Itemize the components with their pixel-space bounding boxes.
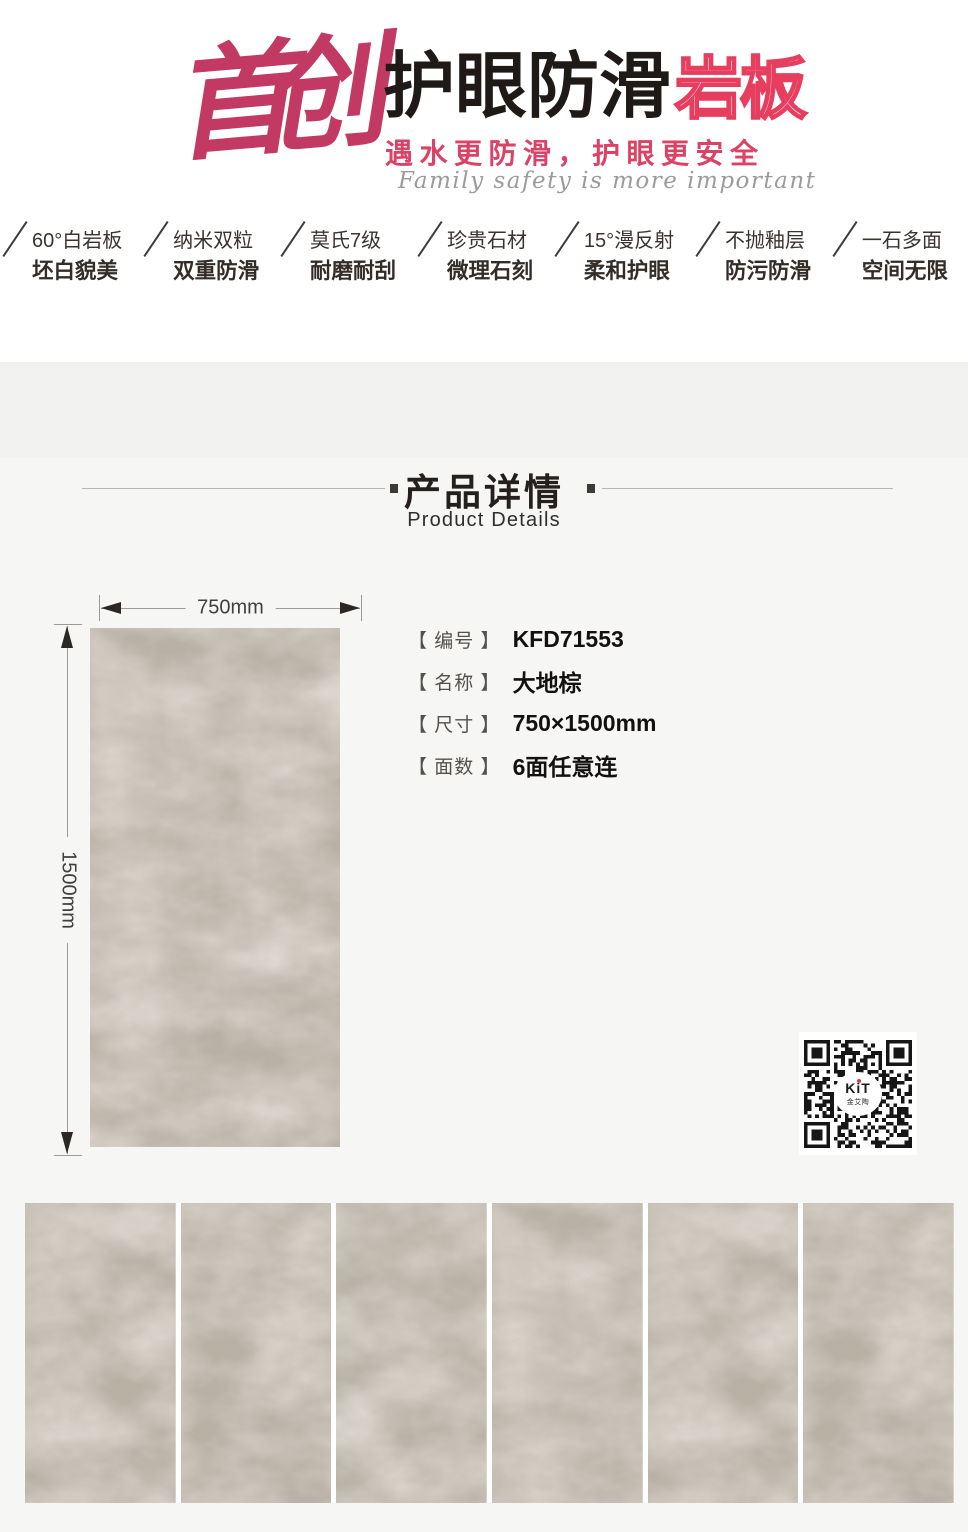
- title-square-right: [587, 484, 595, 493]
- spec-label: 【 面数 】: [408, 752, 501, 779]
- feature-line2: 坯白貌美: [32, 256, 122, 286]
- spec-row: 【 编号 】 KFD71553: [408, 618, 656, 660]
- feature-line2: 耐磨耐刮: [310, 256, 396, 286]
- dimension-tick: [361, 595, 362, 621]
- qr-logo-i: i: [856, 1081, 861, 1095]
- spec-label: 【 尺寸 】: [408, 710, 501, 737]
- arrow-left-icon: [101, 602, 121, 614]
- title-rule-right: [602, 488, 893, 489]
- feature-item: 一石多面 空间无限: [840, 226, 948, 286]
- feature-line1: 莫氏7级: [310, 226, 396, 256]
- feature-line1: 15°漫反射: [584, 226, 674, 256]
- spec-list: 【 编号 】 KFD71553 【 名称 】 大地棕 【 尺寸 】 750×15…: [408, 618, 656, 786]
- tagline-cn: 遇水更防滑，护眼更安全: [385, 132, 765, 172]
- slash-icon: [832, 221, 857, 257]
- feature-item: 莫氏7级 耐磨耐刮: [288, 226, 396, 286]
- feature-line1: 一石多面: [862, 226, 948, 256]
- spec-value: 750×1500mm: [513, 710, 657, 737]
- tile-gallery: [25, 1203, 954, 1503]
- feature-item: 60°白岩板 坯白貌美: [10, 226, 122, 286]
- headline-black: 护眼防滑: [383, 48, 671, 127]
- slash-icon: [144, 221, 169, 257]
- headline: 护眼防滑 岩板: [383, 48, 805, 127]
- feature-bar: 60°白岩板 坯白貌美 纳米双粒 双重防滑 莫氏7级 耐磨耐刮 珍贵石材 微理石…: [0, 226, 968, 286]
- width-label: 750mm: [185, 597, 276, 620]
- tile-swatch: [336, 1203, 487, 1503]
- slash-icon: [554, 221, 579, 257]
- qr-code: K i T 金艾陶: [799, 1032, 917, 1155]
- feature-item: 珍贵石材 微理石刻: [425, 226, 533, 286]
- spec-value: 6面任意连: [513, 748, 618, 782]
- feature-line2: 双重防滑: [173, 256, 259, 286]
- slash-icon: [280, 221, 305, 257]
- dimension-tick: [99, 595, 100, 621]
- qr-logo-t: T: [861, 1081, 871, 1095]
- product-detail-page: 首创 护眼防滑 岩板 遇水更防滑，护眼更安全 Family safety is …: [0, 0, 968, 1532]
- feature-line2: 防污防滑: [725, 256, 811, 286]
- spec-value: KFD71553: [513, 626, 624, 653]
- spec-row: 【 面数 】 6面任意连: [408, 744, 656, 786]
- feature-line2: 空间无限: [862, 256, 948, 286]
- arrow-right-icon: [340, 602, 360, 614]
- feature-line1: 纳米双粒: [173, 226, 259, 256]
- height-label: 1500mm: [57, 837, 80, 943]
- feature-line2: 微理石刻: [447, 256, 533, 286]
- tile-swatch: [25, 1203, 176, 1503]
- spec-label: 【 编号 】: [408, 626, 501, 653]
- feature-item: 15°漫反射 柔和护眼: [562, 226, 674, 286]
- brand-logo-calligraphy: 首创: [166, 18, 362, 180]
- spec-value: 大地棕: [513, 664, 582, 698]
- product-tile-image: [90, 628, 340, 1147]
- feature-item: 纳米双粒 双重防滑: [151, 226, 259, 286]
- dimension-tick: [54, 624, 82, 625]
- section-title: 产品详情: [0, 462, 968, 516]
- dimension-tick: [54, 1155, 82, 1156]
- qr-logo: K i T 金艾陶: [834, 1072, 882, 1116]
- tile-swatch: [648, 1203, 799, 1503]
- qr-logo-k: K: [845, 1081, 856, 1095]
- tile-swatch: [181, 1203, 332, 1503]
- tile-swatch: [803, 1203, 954, 1503]
- qr-logo-text: K i T: [845, 1081, 871, 1095]
- spec-row: 【 名称 】 大地棕: [408, 660, 656, 702]
- section-subtitle: Product Details: [0, 509, 968, 532]
- slash-icon: [695, 221, 720, 257]
- width-dimension: 750mm: [99, 595, 362, 621]
- gray-band: [0, 362, 968, 458]
- feature-line1: 珍贵石材: [447, 226, 533, 256]
- tagline-en: Family safety is more important: [398, 168, 816, 194]
- feature-line2: 柔和护眼: [584, 256, 674, 286]
- tile-swatch: [492, 1203, 643, 1503]
- spec-row: 【 尺寸 】 750×1500mm: [408, 702, 656, 744]
- qr-logo-subtext: 金艾陶: [847, 1097, 870, 1107]
- height-dimension: 1500mm: [54, 624, 82, 1156]
- slash-icon: [2, 221, 27, 257]
- feature-item: 不抛釉层 防污防滑: [703, 226, 811, 286]
- slash-icon: [417, 221, 442, 257]
- arrow-up-icon: [61, 626, 73, 648]
- feature-line1: 60°白岩板: [32, 226, 122, 256]
- arrow-down-icon: [61, 1132, 73, 1154]
- headline-outline: 岩板: [675, 52, 805, 127]
- spec-label: 【 名称 】: [408, 668, 501, 695]
- feature-line1: 不抛釉层: [725, 226, 811, 256]
